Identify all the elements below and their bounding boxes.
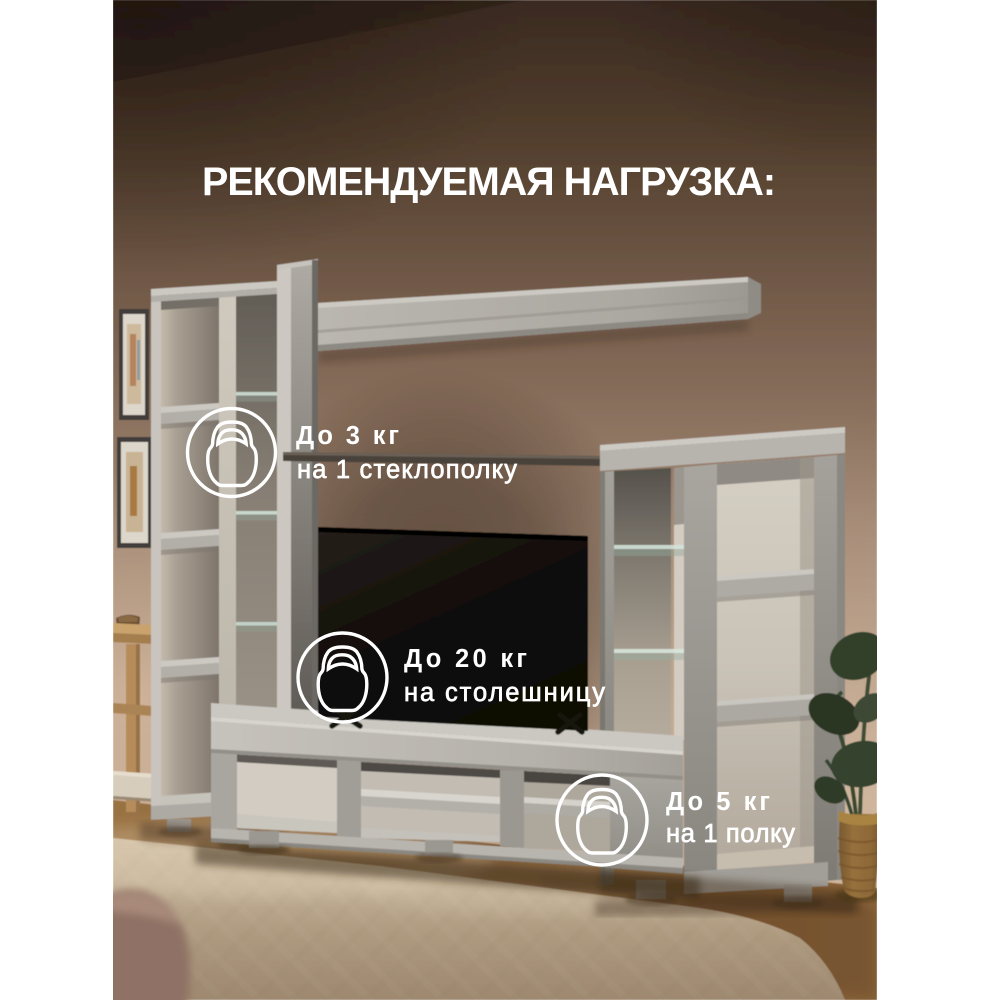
svg-text:До 3 кг: До 3 кг [296, 422, 399, 450]
svg-text:РЕКОМЕНДУЕМАЯ НАГРУЗКА:: РЕКОМЕНДУЕМАЯ НАГРУЗКА: [202, 160, 776, 204]
svg-text:на 1 полку: на 1 полку [666, 820, 795, 848]
svg-text:До 5 кг: До 5 кг [666, 788, 770, 816]
svg-text:До 20 кг: До 20 кг [404, 645, 527, 673]
svg-text:на 1 стеклополку: на 1 стеклополку [297, 456, 517, 484]
